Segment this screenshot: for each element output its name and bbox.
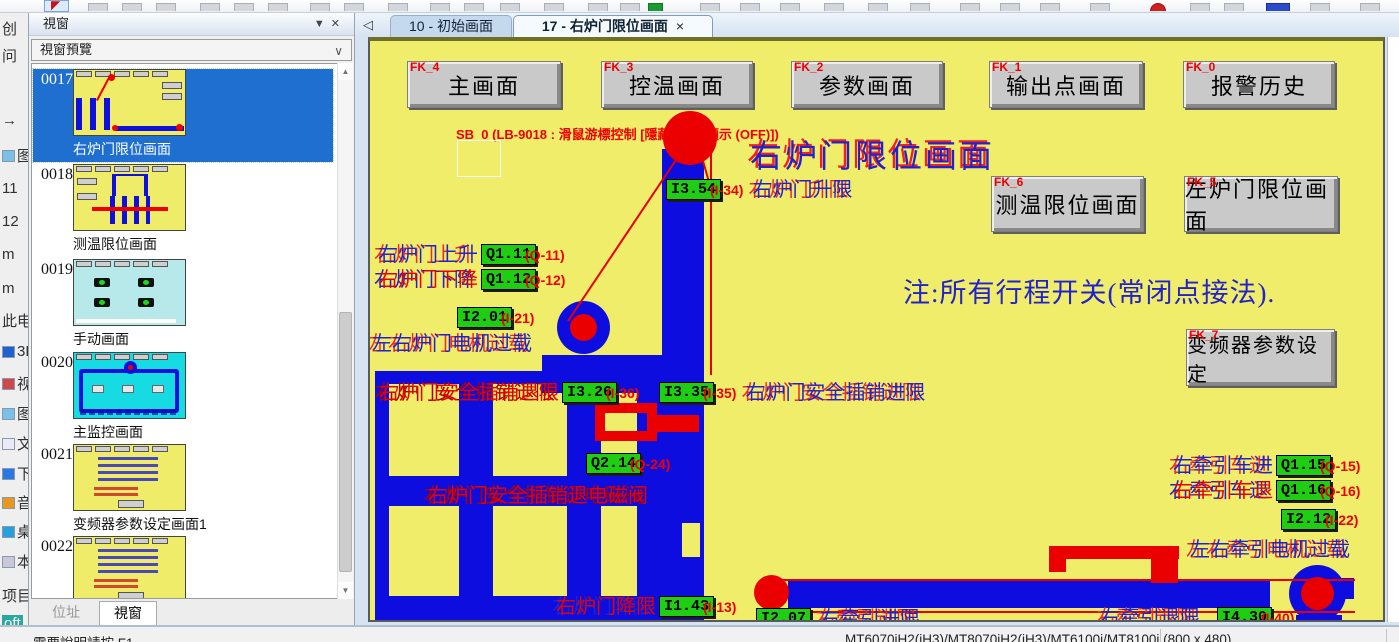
screen-title: 右炉门限位画面	[750, 131, 995, 177]
toolbar-icon-fragment[interactable]	[1190, 3, 1210, 11]
io-traction-car-forward[interactable]: 右牵引车进Q1.15(Q-15)	[1173, 455, 1360, 478]
screen-item-0020[interactable]: 0020 主监控画面	[33, 352, 333, 445]
io-door-up-limit[interactable]: I3.54(I-34)右炉门升限	[666, 179, 852, 202]
screen-thumbnail-list[interactable]: 0017 右炉门限位画面 0018 测温限位画面	[31, 63, 352, 599]
address-chip: I2.07	[756, 608, 811, 622]
red-tool-icon[interactable]	[1150, 3, 1166, 11]
tab-address[interactable]: 位址	[35, 601, 97, 625]
help-hint: 需要說明請按 F1	[33, 632, 134, 642]
desktop-icon-label: 此电	[2, 310, 28, 331]
toolbar-icon-fragment[interactable]	[88, 3, 108, 11]
desktop-icon-label: 音	[2, 492, 28, 513]
panel-menu-icon[interactable]: ▼	[314, 18, 331, 30]
fk1-output-points-button[interactable]: FK_1输出点画面	[989, 61, 1143, 108]
toolbar-icon-fragment[interactable]	[1224, 3, 1244, 11]
screen-label: 测温限位画面	[73, 234, 157, 254]
desktop-icon-label: 项目	[2, 585, 28, 606]
io-door-down-limit[interactable]: 右炉门降限I1.43(I-13)	[556, 596, 736, 619]
wiring-note: 注:所有行程开关(常闭点接法).	[903, 271, 1275, 310]
io-pin-retract-limit[interactable]: 右炉门安全插销退限I3.26(I-36)	[379, 382, 639, 405]
desktop-icon-label: →	[2, 112, 17, 129]
toolbar-icon-fragment[interactable]	[1040, 3, 1060, 11]
toolbar-icon-fragment[interactable]	[588, 3, 608, 11]
io-door-lower[interactable]: 右炉门下降Q1.12(Q-12)	[378, 269, 565, 292]
toolbar-icon-fragment[interactable]	[868, 3, 888, 11]
io-i2-01[interactable]: I2.01(I-21)	[457, 307, 534, 328]
fk0-alarm-history-button[interactable]: FK_0报警历史	[1183, 61, 1335, 108]
desktop-icon-label: 11	[2, 180, 18, 197]
io-traction-motor-overload[interactable]: 左右牵引电机过载	[1190, 539, 1350, 562]
panel-titlebar[interactable]: 視窗 ▼✕	[29, 13, 354, 36]
scroll-up-icon[interactable]: ▲	[338, 63, 353, 80]
io-q2-14[interactable]: Q2.14(Q-24)	[586, 453, 670, 474]
document-tabbar: ◁ 10 - 初始画面 17 - 右炉门限位画面×	[355, 13, 1399, 37]
desktop-icon-label: 视	[2, 373, 28, 394]
desktop-icon-label: m	[2, 280, 15, 297]
screen-item-0022[interactable]: 0022	[33, 536, 333, 599]
desktop-icon-label: 图	[2, 145, 28, 166]
toolbar-icon-fragment[interactable]	[1090, 3, 1110, 11]
fk6-temp-limit-button[interactable]: FK_6测温限位画面	[991, 176, 1144, 232]
desktop-icon-label: 下	[2, 463, 28, 484]
panel-close-icon[interactable]: ✕	[331, 18, 346, 30]
io-i2-12[interactable]: I2.12(I-22)	[1281, 509, 1358, 530]
toolbar-icon-fragment[interactable]	[234, 3, 254, 11]
toolbar-icon-fragment[interactable]	[620, 3, 640, 11]
screen-number: 0019	[41, 261, 73, 279]
top-toolbar[interactable]: ◤	[0, 0, 1399, 13]
screen-item-0021[interactable]: 0021 变频器参数设定画面1	[33, 444, 333, 537]
screen-thumbnail[interactable]	[73, 444, 186, 511]
desktop-icon-label: 桌	[2, 521, 28, 542]
fk7-vfd-settings-button[interactable]: FK_7变频器参数设定	[1186, 329, 1335, 386]
application-window: ◤ 创问→图1112mm此电3D视图文下音桌本项目oft 視窗 ▼✕ 視窗預覽 …	[0, 0, 1399, 642]
screen-number: 0021	[41, 446, 73, 464]
toolbar-icon-fragment[interactable]	[740, 3, 760, 11]
window-panel: 視窗 ▼✕ 視窗預覽 ∨ 0017 右炉门限位画面 0018	[28, 13, 355, 625]
toolbar-icon-fragment[interactable]	[310, 3, 330, 11]
screen-label: 右炉门限位画面	[73, 139, 171, 159]
screen-label: 主监控画面	[73, 422, 143, 442]
screen-number: 0017	[41, 71, 73, 89]
panel-title: 視窗	[43, 16, 69, 31]
toolbar-icon-fragment[interactable]	[500, 3, 520, 11]
io-door-raise[interactable]: 右炉门上升Q1.11(Q-11)	[378, 244, 565, 267]
sb0-invisible-button[interactable]	[457, 140, 501, 177]
panel-bottom-tabs: 位址 視窗	[29, 599, 354, 625]
target-device-model: MT6070iH2(iH3)/MT8070iH2(iH3)/MT6100i/MT…	[845, 632, 1231, 642]
screen-label: 手动画面	[73, 329, 129, 349]
green-tool-icon[interactable]	[648, 3, 663, 11]
screen-number: 0018	[41, 166, 73, 184]
screen-thumbnail[interactable]	[73, 536, 186, 599]
fk2-parameter-button[interactable]: FK_2参数画面	[791, 61, 943, 108]
toolbar-icon-fragment[interactable]	[910, 3, 930, 11]
hmi-design-canvas[interactable]: FK_4主画面 FK_3控温画面 FK_2参数画面 FK_1输出点画面 FK_0…	[368, 37, 1385, 622]
fk3-temp-control-button[interactable]: FK_3控温画面	[601, 61, 753, 108]
toolbar-icon-fragment[interactable]	[344, 3, 364, 11]
desktop-icon-label: 创	[2, 18, 17, 39]
screen-item-0018[interactable]: 0018 测温限位画面	[33, 164, 333, 257]
canvas-scroll-area[interactable]	[1387, 37, 1399, 622]
io-traction-back-limit[interactable]: 右牵引退限I4.30(I-40)	[1100, 607, 1294, 622]
tab-window[interactable]: 視窗	[99, 601, 157, 625]
toolbar-icon-fragment[interactable]	[430, 3, 450, 11]
scroll-down-icon[interactable]: ▼	[338, 582, 353, 599]
tab-scroll-left-icon[interactable]: ◁	[363, 17, 373, 33]
screen-label: 变频器参数设定画面1	[73, 514, 207, 534]
toolbar-icon-fragment[interactable]	[1360, 3, 1380, 11]
tab-screen-17[interactable]: 17 - 右炉门限位画面×	[513, 15, 713, 37]
desktop-icon-label: 本	[2, 551, 28, 572]
toolbar-icon-fragment[interactable]	[388, 3, 408, 11]
tab-screen-10[interactable]: 10 - 初始画面	[390, 15, 512, 37]
screen-thumbnail[interactable]	[73, 164, 186, 231]
thumbnail-scrollbar[interactable]: ▲ ▼	[337, 63, 353, 599]
blue-tool-icon[interactable]	[1266, 3, 1290, 11]
scrollbar-thumb[interactable]	[339, 312, 352, 572]
screen-thumbnail[interactable]	[73, 352, 186, 419]
toolbar-icon-fragment[interactable]	[1000, 3, 1020, 11]
screen-thumbnail[interactable]	[73, 259, 186, 326]
screen-number: 0020	[41, 354, 73, 372]
toolbar-icon-fragment[interactable]	[544, 3, 564, 11]
desktop-icon-label: 文	[2, 433, 28, 454]
screen-number: 0022	[41, 538, 73, 556]
toolbar-icon-fragment[interactable]	[200, 3, 220, 11]
chevron-down-icon: ∨	[334, 41, 343, 61]
screen-thumbnail[interactable]	[73, 69, 186, 136]
select-cursor-tool-icon[interactable]: ◤	[44, 0, 69, 12]
fk4-main-screen-button[interactable]: FK_4主画面	[407, 61, 561, 108]
sb0-mouse-cursor-note: SB_0 (LB-9018 : 滑鼠游標控制 [隱藏 (ON)/顯示 (OFF)…	[456, 124, 779, 143]
desktop-icon-label: 图	[2, 403, 28, 424]
io-traction-forward-limit[interactable]: I2.07右牵引进限	[756, 608, 920, 622]
toolbar-icon-fragment[interactable]	[1310, 3, 1330, 11]
toolbar-icon-fragment[interactable]	[960, 3, 980, 11]
screen-item-0017[interactable]: 0017 右炉门限位画面	[33, 69, 333, 162]
toolbar-icon-fragment[interactable]	[780, 3, 800, 11]
toolbar-icon-fragment[interactable]	[464, 3, 484, 11]
status-bar: 需要說明請按 F1 MT6070iH2(iH3)/MT8070iH2(iH3)/…	[0, 625, 1399, 642]
tab-close-icon[interactable]: ×	[676, 18, 684, 34]
toolbar-icon-fragment[interactable]	[122, 3, 142, 11]
toolbar-icon-fragment[interactable]	[268, 3, 288, 11]
toolbar-icon-fragment[interactable]	[700, 3, 720, 11]
io-door-motor-overload[interactable]: 左右炉门电机过载	[372, 333, 532, 356]
desktop-icon-label: m	[2, 246, 15, 263]
preview-mode-dropdown[interactable]: 視窗預覽 ∨	[31, 39, 352, 61]
toolbar-icon-fragment[interactable]	[824, 3, 844, 11]
desktop-icon-label: oft	[2, 615, 23, 625]
fk5-left-door-limit-button[interactable]: FK_5左炉门限位画面	[1184, 176, 1338, 232]
io-pin-insert-limit[interactable]: I3.35(I-35)右炉门安全插销进限	[659, 382, 925, 405]
desktop-icon-label: 3D	[2, 343, 28, 360]
desktop-icon-label: 12	[2, 213, 19, 230]
screen-item-0019[interactable]: 0019 手动画面	[33, 259, 333, 352]
io-pin-solenoid[interactable]: 右炉门安全插销退电磁阀	[428, 485, 648, 508]
io-traction-car-back[interactable]: 右牵引车退Q1.16(Q-16)	[1173, 480, 1360, 503]
desktop-icons-strip: 创问→图1112mm此电3D视图文下音桌本项目oft	[0, 13, 28, 625]
desktop-icon-label: 问	[2, 45, 17, 66]
toolbar-icon-fragment[interactable]	[156, 3, 176, 11]
